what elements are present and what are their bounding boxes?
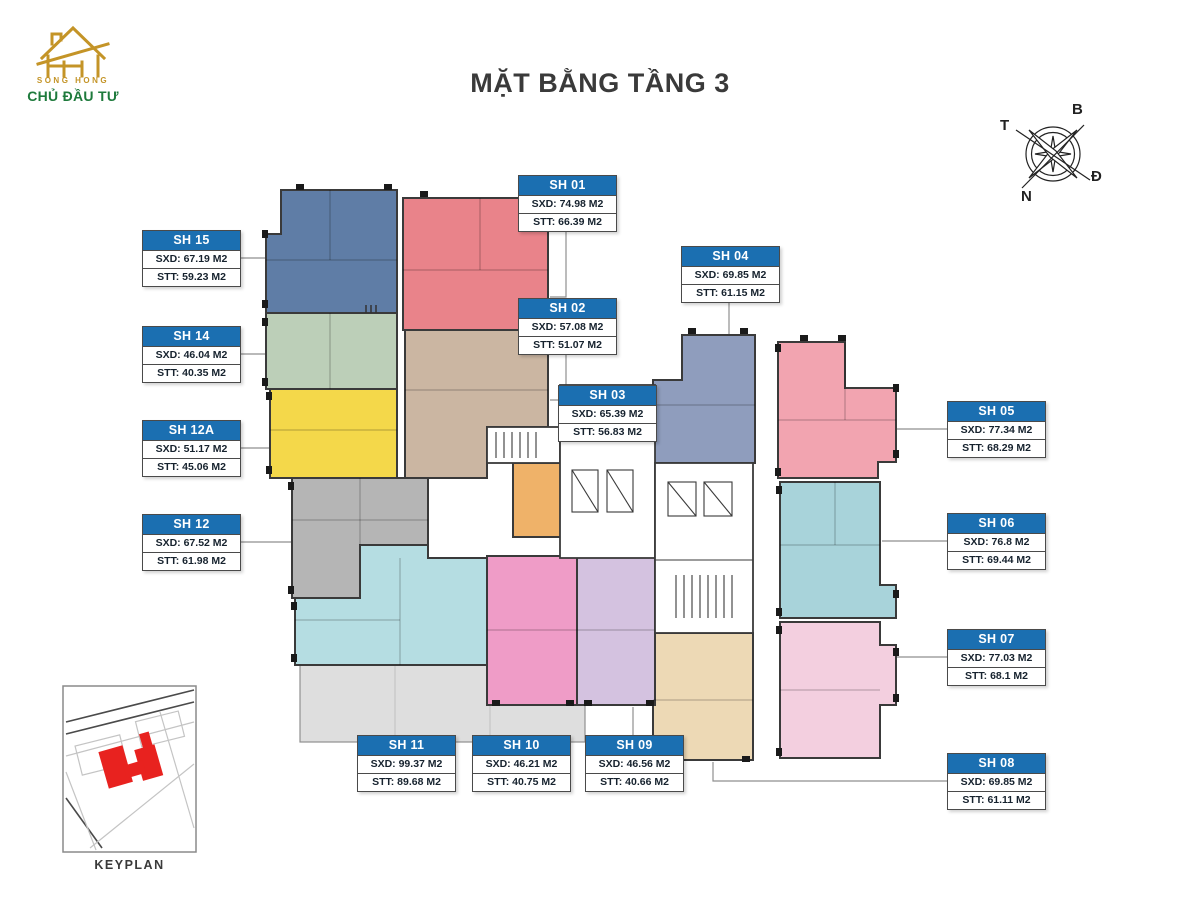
floor-plan-page: MẶT BẰNG TẦNG 3 SONG HONG CHỦ ĐẦU TƯ B T… — [0, 0, 1200, 910]
unit-stt: STT: 66.39 M2 — [519, 213, 616, 231]
unit-label-sh15: SH 15 SXD: 67.19 M2 STT: 59.23 M2 — [142, 230, 241, 287]
unit-name: SH 12 — [143, 515, 240, 535]
unit-stt: STT: 40.35 M2 — [143, 364, 240, 382]
unit-sxd: SXD: 74.98 M2 — [519, 196, 616, 213]
unit-label-sh09: SH 09 SXD: 46.56 M2 STT: 40.66 M2 — [585, 735, 684, 792]
unit-label-sh12a: SH 12A SXD: 51.17 M2 STT: 45.06 M2 — [142, 420, 241, 477]
unit-label-sh12: SH 12 SXD: 67.52 M2 STT: 61.98 M2 — [142, 514, 241, 571]
unit-name: SH 12A — [143, 421, 240, 441]
unit-sxd: SXD: 51.17 M2 — [143, 441, 240, 458]
developer-label: CHỦ ĐẦU TƯ — [16, 88, 130, 104]
compass-rose — [1016, 125, 1090, 188]
unit-region-sh14 — [266, 313, 397, 389]
unit-stt: STT: 40.75 M2 — [473, 773, 570, 791]
unit-stt: STT: 68.1 M2 — [948, 667, 1045, 685]
unit-sxd: SXD: 46.21 M2 — [473, 756, 570, 773]
unit-sxd: SXD: 46.56 M2 — [586, 756, 683, 773]
unit-name: SH 05 — [948, 402, 1045, 422]
unit-name: SH 10 — [473, 736, 570, 756]
unit-label-sh02: SH 02 SXD: 57.08 M2 STT: 51.07 M2 — [518, 298, 617, 355]
compass-south-label: N — [1021, 188, 1032, 205]
unit-label-sh10: SH 10 SXD: 46.21 M2 STT: 40.75 M2 — [472, 735, 571, 792]
keyplan-map — [63, 686, 196, 852]
unit-label-sh08: SH 08 SXD: 69.85 M2 STT: 61.11 M2 — [947, 753, 1046, 810]
unit-stt: STT: 61.98 M2 — [143, 552, 240, 570]
unit-stt: STT: 59.23 M2 — [143, 268, 240, 286]
unit-stt: STT: 61.11 M2 — [948, 791, 1045, 809]
unit-sxd: SXD: 46.04 M2 — [143, 347, 240, 364]
unit-label-sh14: SH 14 SXD: 46.04 M2 STT: 40.35 M2 — [142, 326, 241, 383]
unit-label-sh05: SH 05 SXD: 77.34 M2 STT: 68.29 M2 — [947, 401, 1046, 458]
unit-region-sh15 — [266, 190, 397, 313]
unit-label-sh06: SH 06 SXD: 76.8 M2 STT: 69.44 M2 — [947, 513, 1046, 570]
brand-name: SONG HONG — [20, 76, 126, 85]
unit-name: SH 02 — [519, 299, 616, 319]
unit-sxd: SXD: 69.85 M2 — [682, 267, 779, 284]
unit-label-sh07: SH 07 SXD: 77.03 M2 STT: 68.1 M2 — [947, 629, 1046, 686]
unit-name: SH 08 — [948, 754, 1045, 774]
unit-label-sh01: SH 01 SXD: 74.98 M2 STT: 66.39 M2 — [518, 175, 617, 232]
unit-sxd: SXD: 99.37 M2 — [358, 756, 455, 773]
unit-name: SH 15 — [143, 231, 240, 251]
compass-east-label: Đ — [1091, 168, 1102, 185]
unit-sxd: SXD: 69.85 M2 — [948, 774, 1045, 791]
unit-stt: STT: 51.07 M2 — [519, 336, 616, 354]
unit-sxd: SXD: 65.39 M2 — [559, 406, 656, 423]
unit-stt: STT: 69.44 M2 — [948, 551, 1045, 569]
unit-region-sh05 — [778, 342, 896, 478]
compass-north-label: B — [1072, 101, 1083, 118]
unit-name: SH 01 — [519, 176, 616, 196]
unit-sxd: SXD: 67.52 M2 — [143, 535, 240, 552]
unit-name: SH 14 — [143, 327, 240, 347]
unit-name: SH 11 — [358, 736, 455, 756]
unit-region-sh12a — [270, 389, 397, 478]
compass-west-label: T — [1000, 117, 1009, 134]
unit-stt: STT: 61.15 M2 — [682, 284, 779, 302]
unit-label-sh11: SH 11 SXD: 99.37 M2 STT: 89.68 M2 — [357, 735, 456, 792]
unit-name: SH 07 — [948, 630, 1045, 650]
unit-stt: STT: 45.06 M2 — [143, 458, 240, 476]
keyplan-label: KEYPLAN — [63, 858, 196, 872]
unit-stt: STT: 56.83 M2 — [559, 423, 656, 441]
unit-sxd: SXD: 67.19 M2 — [143, 251, 240, 268]
unit-label-sh04: SH 04 SXD: 69.85 M2 STT: 61.15 M2 — [681, 246, 780, 303]
unit-name: SH 04 — [682, 247, 779, 267]
unit-sxd: SXD: 57.08 M2 — [519, 319, 616, 336]
unit-sxd: SXD: 77.03 M2 — [948, 650, 1045, 667]
unit-name: SH 06 — [948, 514, 1045, 534]
unit-stt: STT: 40.66 M2 — [586, 773, 683, 791]
unit-name: SH 09 — [586, 736, 683, 756]
page-title: MẶT BẰNG TẦNG 3 — [0, 68, 1200, 99]
unit-stt: STT: 68.29 M2 — [948, 439, 1045, 457]
unit-sxd: SXD: 76.8 M2 — [948, 534, 1045, 551]
unit-region-sh06 — [780, 482, 896, 618]
unit-label-sh03: SH 03 SXD: 65.39 M2 STT: 56.83 M2 — [558, 385, 657, 442]
unit-name: SH 03 — [559, 386, 656, 406]
unit-region-sh04 — [653, 335, 755, 463]
unit-stt: STT: 89.68 M2 — [358, 773, 455, 791]
unit-sxd: SXD: 77.34 M2 — [948, 422, 1045, 439]
